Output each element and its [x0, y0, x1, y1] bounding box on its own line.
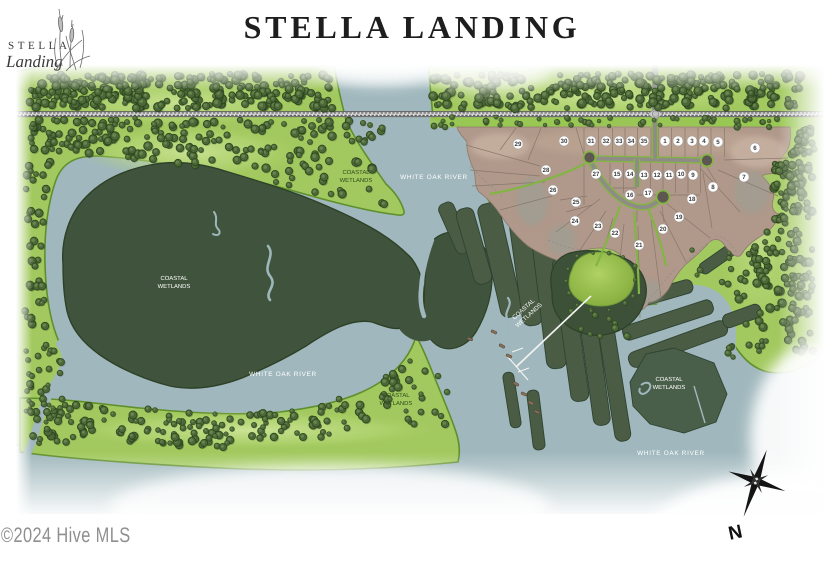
svg-text:WETLANDS: WETLANDS — [340, 177, 373, 184]
svg-text:30: 30 — [561, 138, 568, 145]
svg-text:28: 28 — [543, 167, 550, 174]
svg-text:©2024 Hive MLS: ©2024 Hive MLS — [1, 524, 131, 547]
svg-text:Landing: Landing — [5, 52, 63, 71]
svg-text:4: 4 — [702, 138, 706, 145]
svg-text:25: 25 — [573, 199, 580, 206]
svg-text:15: 15 — [614, 171, 621, 178]
svg-text:1: 1 — [663, 138, 667, 145]
svg-text:20: 20 — [660, 226, 667, 233]
svg-text:COASTAL: COASTAL — [160, 275, 188, 282]
svg-text:WETLANDS: WETLANDS — [158, 283, 191, 290]
svg-text:32: 32 — [603, 138, 610, 145]
svg-text:16: 16 — [627, 192, 634, 199]
svg-text:13: 13 — [641, 172, 648, 179]
svg-text:34: 34 — [628, 138, 635, 145]
svg-text:COASTAL: COASTAL — [382, 392, 410, 399]
svg-text:12: 12 — [654, 172, 661, 179]
svg-text:5: 5 — [716, 139, 720, 146]
svg-text:17: 17 — [645, 190, 652, 197]
svg-text:31: 31 — [588, 138, 595, 145]
svg-text:14: 14 — [627, 171, 634, 178]
svg-text:24: 24 — [572, 218, 579, 225]
svg-text:11: 11 — [666, 172, 673, 179]
svg-text:STELLA LANDING: STELLA LANDING — [244, 9, 581, 45]
svg-text:WHITE OAK RIVER: WHITE OAK RIVER — [249, 371, 317, 378]
svg-text:9: 9 — [691, 172, 695, 179]
svg-text:26: 26 — [550, 187, 557, 194]
svg-text:10: 10 — [678, 171, 685, 178]
svg-text:WHITE OAK RIVER: WHITE OAK RIVER — [400, 174, 468, 181]
svg-text:19: 19 — [676, 214, 683, 221]
svg-text:29: 29 — [515, 141, 522, 148]
svg-text:COASTAL: COASTAL — [342, 169, 370, 176]
svg-text:WETLANDS: WETLANDS — [380, 400, 413, 407]
svg-text:8: 8 — [711, 184, 715, 191]
svg-text:COASTAL: COASTAL — [655, 376, 683, 383]
svg-text:33: 33 — [616, 138, 623, 145]
svg-text:27: 27 — [593, 171, 600, 178]
svg-text:6: 6 — [753, 145, 757, 152]
svg-text:WETLANDS: WETLANDS — [653, 384, 686, 391]
svg-text:STELLA: STELLA — [8, 40, 71, 52]
svg-text:18: 18 — [689, 196, 696, 203]
svg-text:3: 3 — [690, 138, 694, 145]
svg-text:21: 21 — [636, 242, 643, 249]
svg-text:35: 35 — [641, 138, 648, 145]
svg-text:2: 2 — [676, 138, 680, 145]
svg-text:7: 7 — [742, 174, 746, 181]
svg-text:22: 22 — [612, 230, 619, 237]
svg-text:23: 23 — [595, 223, 602, 230]
